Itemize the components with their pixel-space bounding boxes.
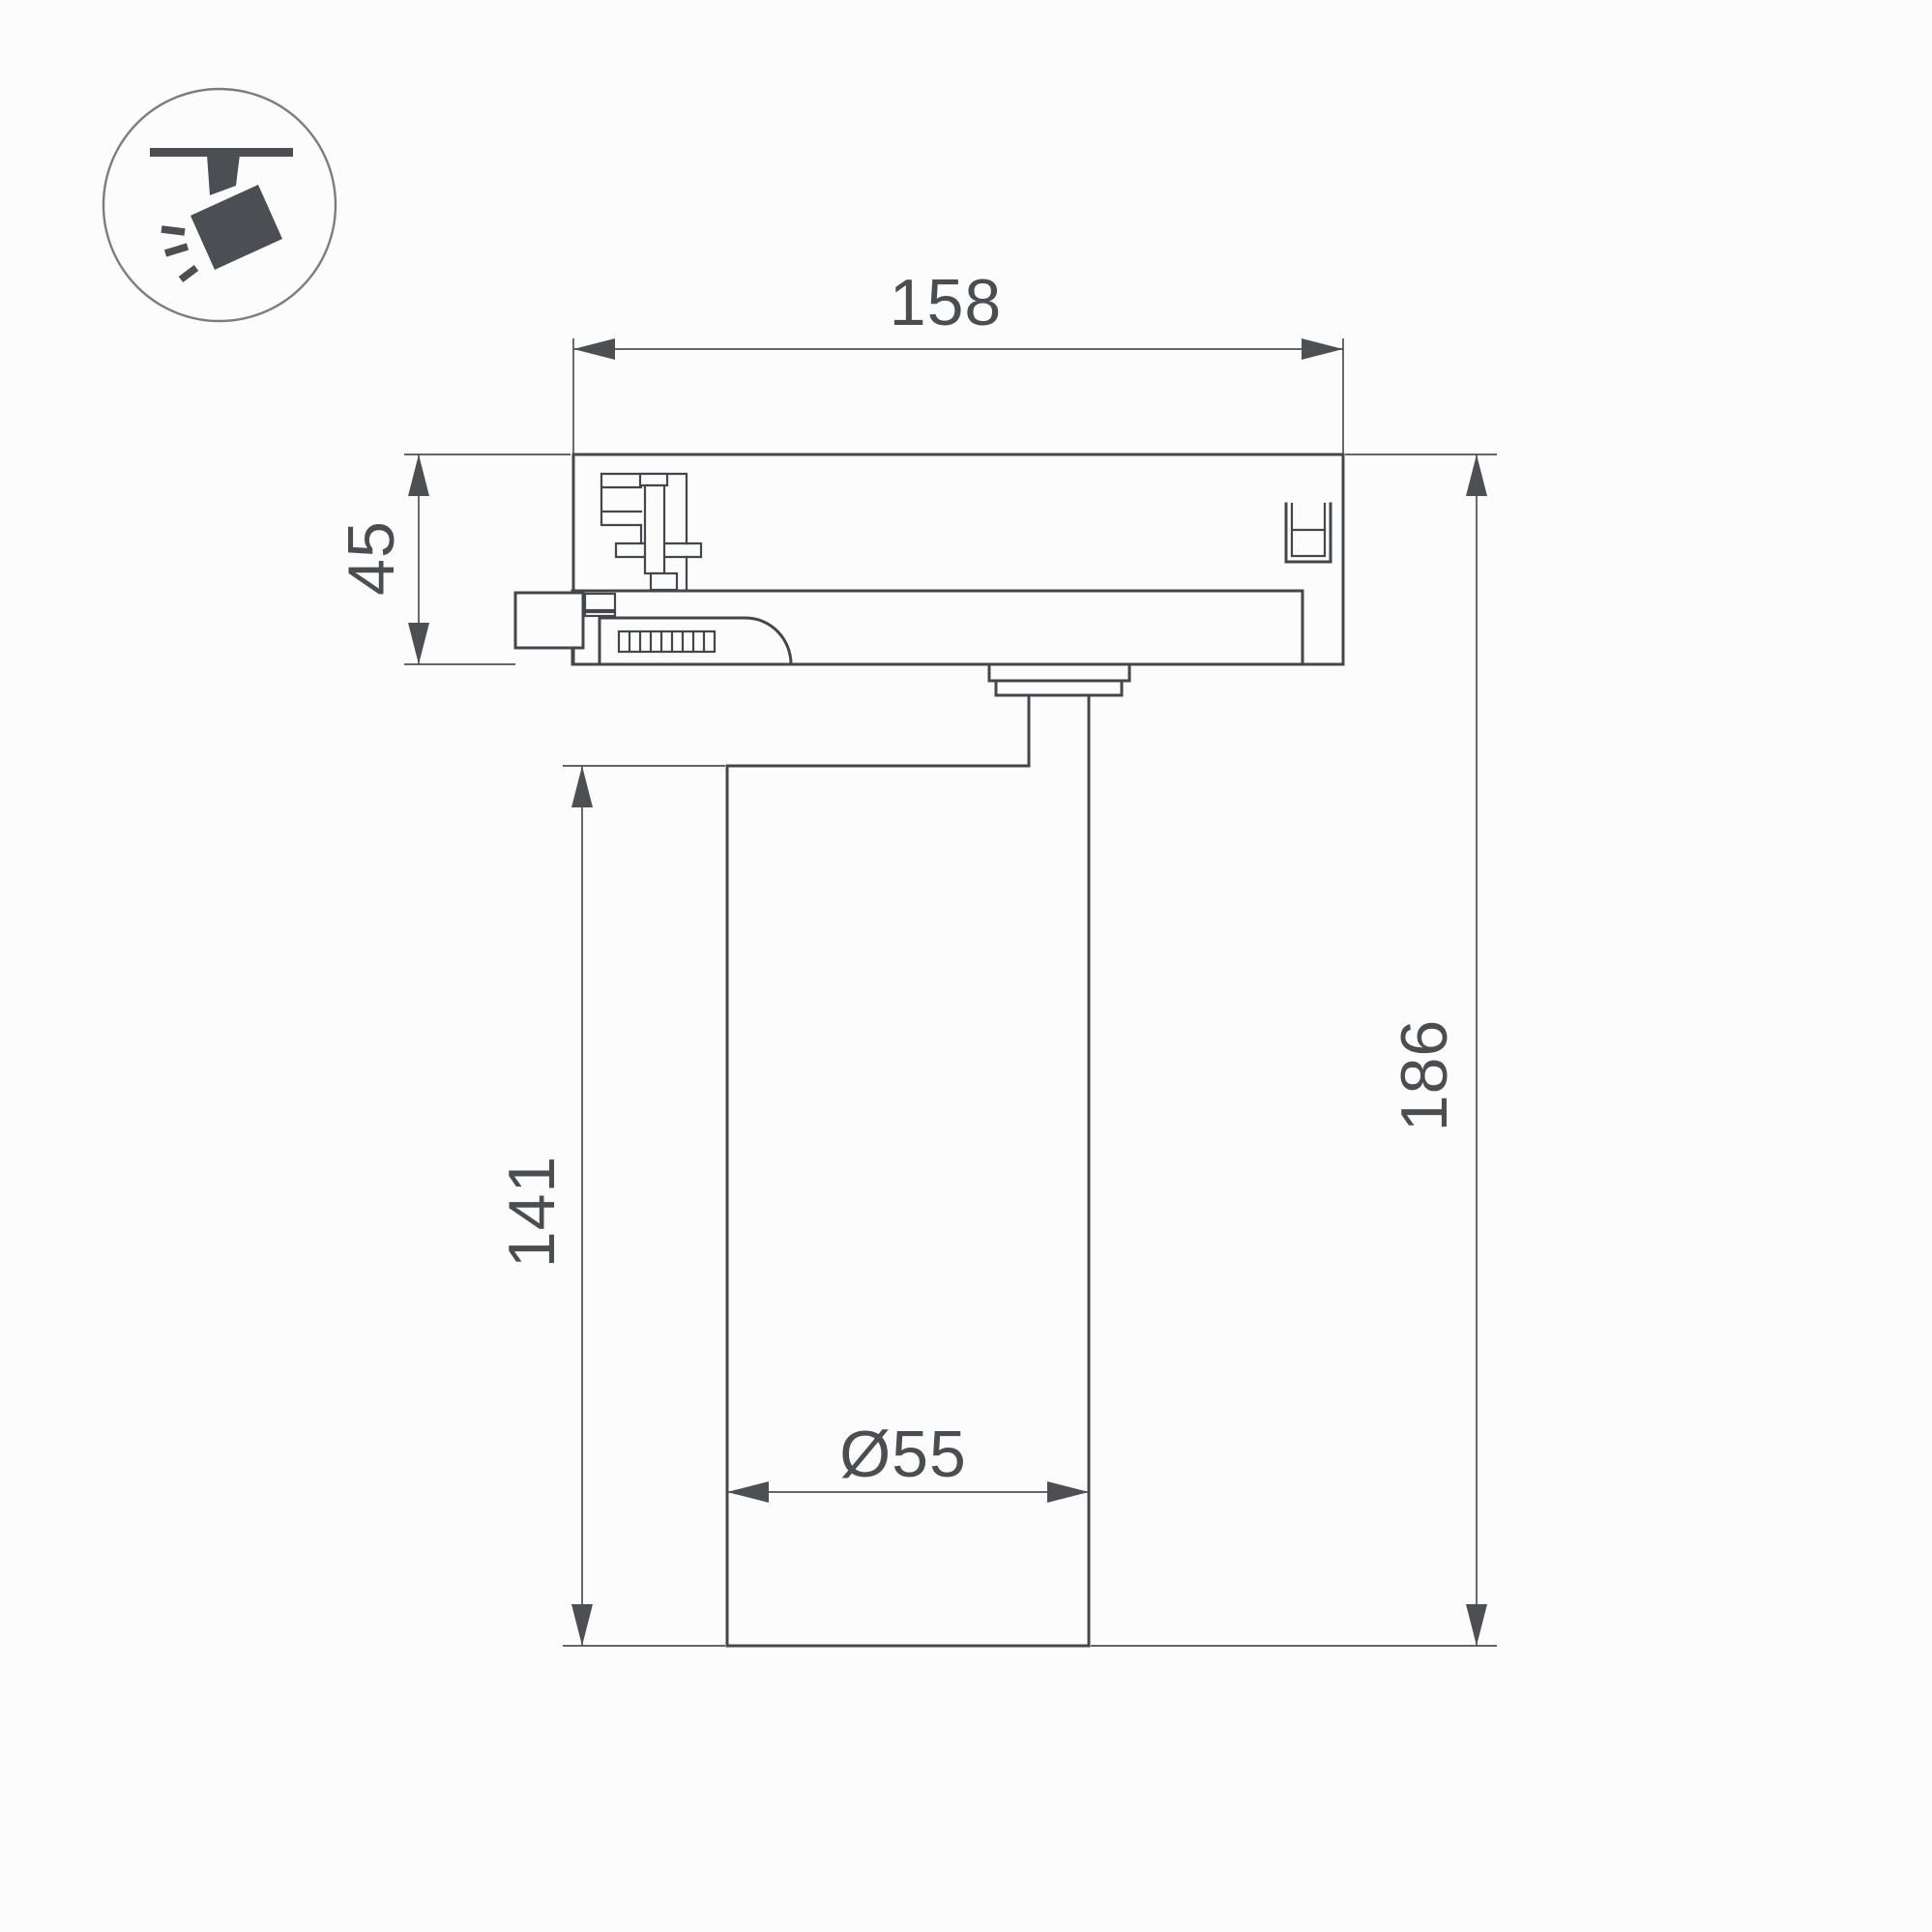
contact-pin-cap bbox=[640, 474, 667, 485]
latch-box bbox=[515, 593, 583, 648]
joint-plate-lower bbox=[996, 681, 1122, 695]
dim-width: 158 bbox=[573, 266, 1343, 454]
contact-block bbox=[601, 474, 701, 590]
contact-pin bbox=[645, 485, 664, 573]
housing-outline bbox=[600, 618, 791, 664]
dim-body-height-label: 141 bbox=[495, 1156, 569, 1268]
dimensional-drawing: 158 45 141 186 Ø55 bbox=[0, 0, 1932, 1932]
dim-adapter-height-label: 45 bbox=[335, 520, 408, 596]
dim-diameter-label: Ø55 bbox=[839, 1418, 967, 1491]
dim-total-height: 186 bbox=[1091, 454, 1497, 1646]
joint-neck bbox=[1029, 695, 1089, 765]
body-outline bbox=[727, 766, 1089, 1646]
swivel-joint bbox=[989, 664, 1129, 765]
contact-pin-foot bbox=[651, 573, 677, 590]
dim-total-height-label: 186 bbox=[1388, 1019, 1461, 1131]
dim-diameter: Ø55 bbox=[727, 1418, 1089, 1503]
vent-housing bbox=[600, 618, 791, 664]
lamp-body bbox=[727, 766, 1089, 1646]
contact-notch bbox=[687, 543, 701, 557]
latch-slide bbox=[585, 594, 615, 610]
u-clip bbox=[1286, 504, 1331, 562]
dim-body-height: 141 bbox=[495, 766, 725, 1646]
track-adapter bbox=[515, 454, 1343, 664]
track-spotlight-icon bbox=[103, 89, 336, 321]
dim-width-label: 158 bbox=[890, 266, 1002, 339]
joint-plate-upper bbox=[989, 664, 1129, 681]
